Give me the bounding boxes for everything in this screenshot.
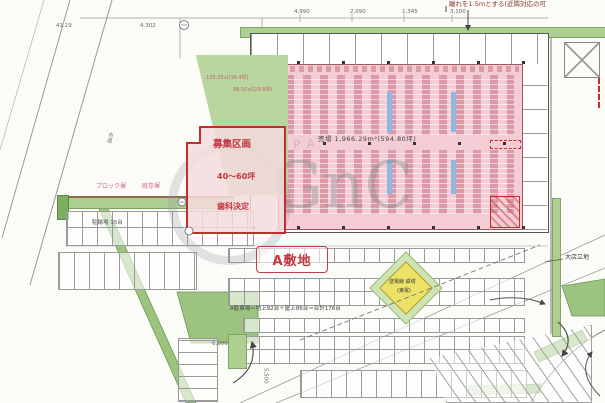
site-plan-canvas: 売場 1,966.29m²(594.80坪) 120.20㎡(36.4坪) 98… bbox=[0, 0, 605, 403]
site-a-badge: A敷地 bbox=[256, 246, 328, 273]
dim-2: 2,090 bbox=[350, 9, 366, 15]
dim-4: 3,100 bbox=[450, 9, 466, 15]
tenant-title: 募集区画 bbox=[213, 140, 251, 151]
block-wall-label: ブロック塀 bbox=[96, 184, 126, 191]
dim-1: 4,990 bbox=[294, 9, 310, 15]
level-2: 4.302 bbox=[140, 23, 156, 29]
parking-total-label: A駐車場＝地上92台＋屋上86台＝合計178台 bbox=[230, 306, 341, 312]
dim-3: 1,345 bbox=[402, 9, 418, 15]
tenant-size: 40～60坪 bbox=[217, 172, 255, 181]
bicycle-label: 駐輪場 15台 bbox=[92, 220, 123, 226]
daiten-label: 大店立地 bbox=[565, 255, 589, 262]
note-top: 離れを1.5mとする(近隣対応の可 bbox=[449, 1, 546, 8]
dim-6: 5,500 bbox=[262, 368, 268, 384]
annotation-layer bbox=[0, 0, 605, 403]
tenant-use: 歯科決定 bbox=[217, 202, 249, 211]
dim-5: 6,000 bbox=[212, 341, 228, 347]
level-1: 41.19 bbox=[56, 23, 72, 29]
site-a-label: A敷地 bbox=[272, 250, 311, 269]
existing-wall-label: 既存塀 bbox=[142, 184, 160, 191]
